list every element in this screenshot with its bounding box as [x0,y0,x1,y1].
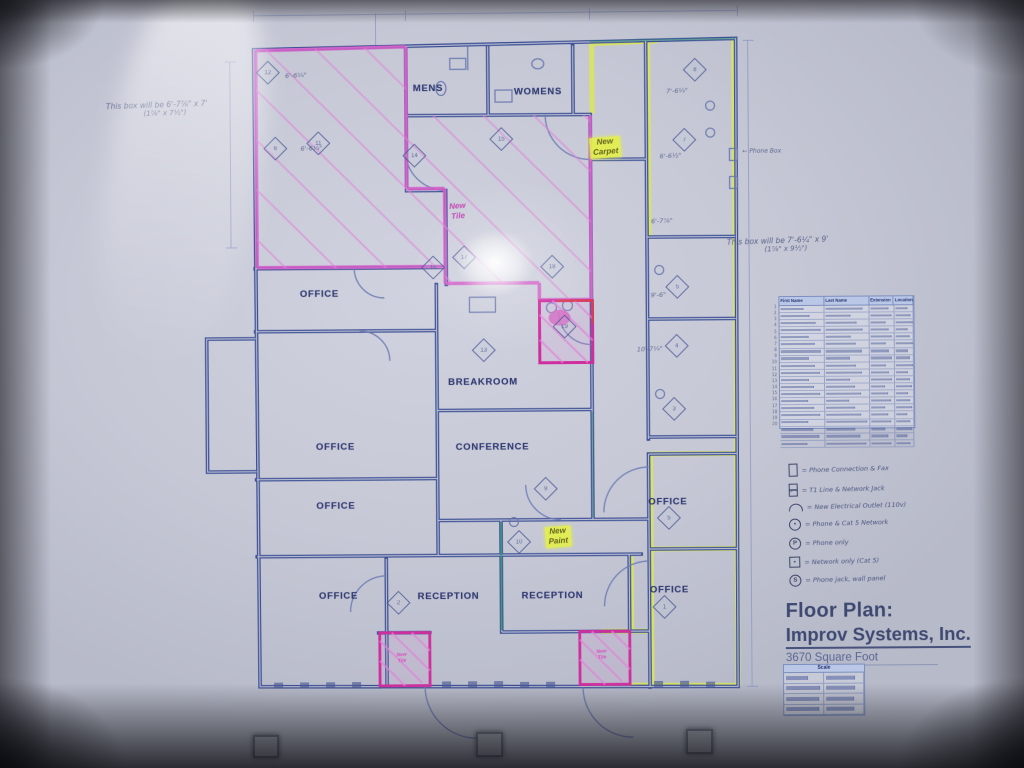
illegible-entry [781,336,809,338]
illegible-entry [826,336,850,338]
table-cell [826,433,871,439]
illegible-entry [826,371,861,373]
illegible-entry [827,442,867,444]
illegible-entry [781,407,814,409]
illegible-entry [826,322,857,324]
highlight-note: NewCarpet [589,136,622,159]
legend-item: S= Phone jack, wall panel [789,570,954,587]
table-cell [825,320,870,326]
illegible-entry [896,385,913,387]
table-cell [780,355,825,361]
illegible-entry [826,329,862,331]
table-cell [871,405,895,411]
table-cell [825,405,870,411]
table-cell [870,376,894,382]
illegible-entry [781,414,820,416]
box2-symbol-icon [789,484,798,497]
illegible-entry [781,329,821,331]
scale-table-cell [784,683,824,693]
table-cell [895,397,914,403]
legend-item: •= Phone & Cat 5 Network [789,514,954,531]
illegible-entry [871,357,891,359]
drawing-title: Floor Plan: [786,599,966,623]
illegible-entry [872,435,888,437]
table-cell [825,313,870,319]
table-cell [895,405,914,411]
illegible-entry [826,350,862,352]
table-cell [895,383,914,389]
table-cell [895,433,914,439]
legend-text: = Phone & Cat 5 Network [805,518,889,528]
illegible-entry [781,315,810,317]
room-label-reception: RECEPTION [418,591,480,602]
illegible-entry [781,393,820,395]
illegible-entry [826,696,854,700]
illegible-entry [826,675,855,679]
legend-text: = Phone Connection & Fax [802,464,889,474]
illegible-entry [872,399,892,401]
circle-symbol-icon: • [789,518,801,530]
table-cell [825,376,870,382]
illegible-entry [826,357,850,359]
scale-table-cell [824,694,864,704]
illegible-entry [781,322,816,324]
illegible-entry [827,428,855,430]
table-cell [871,419,895,425]
photo-of-floor-plan: MENSWOMENSOFFICEOFFICEOFFICEBREAKROOMCON… [0,0,1024,768]
table-cell [895,390,914,396]
table-cell [825,398,870,404]
illegible-entry [781,379,809,381]
illegible-entry [826,407,855,409]
illegible-entry [896,392,908,394]
circle-symbol-icon: S [789,574,801,586]
table-cell [825,369,870,375]
illegible-entry [826,421,866,423]
dimension-note: 7'-6¼" [666,86,688,95]
table-cell [780,398,825,404]
room-label-womens: WOMENS [514,86,562,97]
room-label-reception: RECEPTION [522,590,584,601]
room-label-office: OFFICE [319,591,358,602]
table-cell [870,312,894,318]
legend-text: = New Electrical Outlet (110v) [807,501,906,512]
table-cell [871,433,895,439]
illegible-entry [780,308,803,310]
table-cell [780,327,825,333]
illegible-entry [871,314,892,316]
table-cell [780,433,825,439]
scale-table: Scale [783,664,865,717]
scale-table-cell [784,694,824,704]
scale-table-row [784,683,864,694]
table-cell [894,312,913,318]
dimension-note: 6'-6½" [659,151,681,160]
room-label-mens: MENS [413,83,443,94]
table-cell [780,412,825,418]
column-header: Location [894,296,914,304]
table-cell [825,391,870,397]
room-label-office: OFFICE [300,289,339,300]
mounting-tab [476,732,503,757]
table-cell [870,320,894,326]
employee-extension-table: First NameLast NameExtensionLocation [778,295,915,429]
illegible-entry [896,364,913,366]
illegible-entry [871,328,889,330]
handwritten-note-right: This box will be 7'-6¼" x 9' (1⅞" x 9½") [727,234,829,254]
illegible-entry [781,364,815,366]
illegible-entry [872,442,891,444]
illegible-entry [781,421,808,423]
illegible-entry [826,686,855,690]
illegible-entry [896,357,910,359]
illegible-entry [896,399,910,401]
illegible-entry [786,675,808,679]
table-cell [870,341,894,347]
table-cell [780,370,825,376]
table-cell [825,362,870,368]
legend: = Phone Connection & Fax= T1 Line & Netw… [789,461,955,592]
table-cell [825,412,870,418]
table-cell [780,426,825,432]
illegible-entry [781,428,813,430]
illegible-entry [826,400,849,402]
dimension-note: 6'-7⅞" [651,216,673,225]
illegible-entry [871,350,888,352]
illegible-entry [826,315,851,317]
column-header: First Name [779,297,824,305]
table-cell [870,334,894,340]
table-cell [825,355,870,361]
table-cell [825,327,870,333]
scale-table-row [784,694,864,705]
illegible-entry [826,385,855,387]
illegible-entry [872,421,892,423]
table-cell [895,376,914,382]
table-cell [870,383,894,389]
illegible-entry [895,307,907,309]
table-cell [871,440,895,446]
table-cell [780,405,825,411]
company-name: Improv Systems, Inc. [786,623,971,649]
table-cell [780,341,825,347]
table-cell [895,412,914,418]
table-cell [780,320,825,326]
illegible-entry [871,307,889,309]
table-cell [870,355,894,361]
table-cell [871,412,895,418]
illegible-entry [872,407,886,409]
table-cell [895,348,914,354]
table-cell [895,369,914,375]
table-cell [870,305,894,311]
illegible-entry [895,328,907,330]
table-cell [894,334,913,340]
table-cell [825,419,870,425]
table-cell [894,305,913,311]
illegible-entry [871,392,888,394]
table-cell [780,363,825,369]
dimension-note: 6'-6¼" [285,71,307,80]
illegible-entry [896,371,908,373]
illegible-entry [896,413,908,415]
handwritten-note-top-left: This box will be 6'-7⅞" x 7' (1⅞" x 7½") [106,99,208,119]
table-cell [895,440,914,446]
dimension-note: 10'-7¼" [637,344,663,353]
scale-table-cell [824,704,864,714]
legend-item: •= Network only (Cat 5) [789,552,954,568]
highlight-note: NewTile [449,201,467,222]
room-label-breakroom: BREAKROOM [448,376,518,387]
legend-text: = Phone jack, wall panel [805,574,885,584]
table-cell [895,362,914,368]
room-label-conference: CONFERENCE [456,441,530,453]
table-cell [780,313,825,319]
illegible-entry [872,414,889,416]
table-cell [871,426,895,432]
illegible-entry [786,707,819,711]
table-cell [825,384,870,390]
table-cell [780,441,825,447]
illegible-entry [827,435,861,437]
illegible-entry [781,435,819,437]
illegible-entry [896,435,907,437]
legend-text: = Network only (Cat 5) [804,556,879,566]
scale-table-row [784,704,864,715]
table-cell [825,334,870,340]
illegible-entry [896,442,910,444]
legend-text: = T1 Line & Network Jack [802,484,885,494]
illegible-entry [896,428,912,430]
illegible-entry [781,357,809,359]
table-cell [894,326,913,332]
illegible-entry [896,350,908,352]
table-cell [826,440,871,446]
illegible-entry [896,342,913,344]
illegible-entry [896,421,910,423]
room-label-office: OFFICE [650,584,689,595]
table-cell [780,377,825,383]
legend-item: = New Electrical Outlet (110v) [789,499,954,512]
illegible-entry [871,336,892,338]
illegible-entry [781,400,808,402]
illegible-entry [895,314,910,316]
table-cell [870,362,894,368]
illegible-entry [871,371,888,373]
illegible-entry [895,321,912,323]
circle-symbol-icon: P [789,537,801,549]
scale-table-row [784,673,864,684]
table-cell [825,341,870,347]
legend-item: = T1 Line & Network Jack [789,479,954,497]
room-label-office: OFFICE [316,442,355,453]
table-cell [825,348,870,354]
illegible-entry [786,686,820,690]
table-cell [894,319,913,325]
illegible-entry [781,350,821,352]
illegible-entry [896,378,910,380]
table-cell [779,306,824,312]
table-cell [870,369,894,375]
illegible-entry [826,343,856,345]
legend-text: = Phone only [805,538,849,547]
scale-table-cell [824,683,864,693]
illegible-entry [781,386,814,388]
box-symbol-icon [788,464,797,477]
column-header: Last Name [824,297,869,305]
table-cell [825,305,870,311]
pink-entry-vestibules [380,631,630,686]
table-cell [780,419,825,425]
scale-table-cell [784,673,824,683]
illegible-entry [786,696,819,700]
table-row [780,440,914,448]
column-header: Extension [869,296,894,304]
room-label-office: OFFICE [316,501,355,512]
table-cell [870,390,894,396]
illegible-entry [826,364,856,366]
table-cell [780,384,825,390]
illegible-entry [871,343,885,345]
illegible-entry [895,335,910,337]
mounting-tab [686,729,713,754]
illegible-entry [826,307,863,309]
scale-table-cell [824,673,864,683]
table-cell [895,355,914,361]
illegible-entry [871,378,891,380]
table-cell [895,341,914,347]
highlight-note: NewTile [396,653,407,665]
floor-plan-sheet: MENSWOMENSOFFICEOFFICEOFFICEBREAKROOMCON… [0,0,1024,768]
illegible-entry [826,707,854,711]
table-cell [826,426,871,432]
dimension-note: 6'-6¼" [300,144,322,153]
illegible-entry [826,378,850,380]
illegible-entry [781,443,807,445]
illegible-entry [896,406,912,408]
legend-item: P= Phone only [789,533,954,550]
square-symbol-icon: • [789,556,800,567]
illegible-entry [871,321,886,323]
illegible-entry [872,428,885,430]
mounting-tab [253,735,279,758]
arc-symbol-icon [789,503,803,511]
handwritten-row-numbers: 1234567891011121314151617181920 [770,304,777,427]
table-cell [895,426,914,432]
illegible-entry [871,364,885,366]
phone-box-callout: ← Phone Box [742,148,781,155]
illegible-entry [781,343,815,345]
illegible-entry [871,385,885,387]
table-cell [895,419,914,425]
table-cell [870,348,894,354]
legend-item: = Phone Connection & Fax [788,459,953,477]
dimension-note: 9'-6" [651,291,667,300]
illegible-entry [826,392,861,394]
title-block: Floor Plan: Improv Systems, Inc. 3670 Sq… [786,599,966,666]
teal-marked-walls [498,38,740,630]
highlight-note: NewTile [596,649,607,661]
highlight-note: NewPaint [545,525,572,548]
table-cell [780,334,825,340]
table-cell [871,398,895,404]
table-cell [870,327,894,333]
illegible-entry [781,371,820,373]
illegible-entry [826,414,861,416]
scale-table-cell [784,704,824,714]
table-cell [780,391,825,397]
table-cell [780,348,825,354]
